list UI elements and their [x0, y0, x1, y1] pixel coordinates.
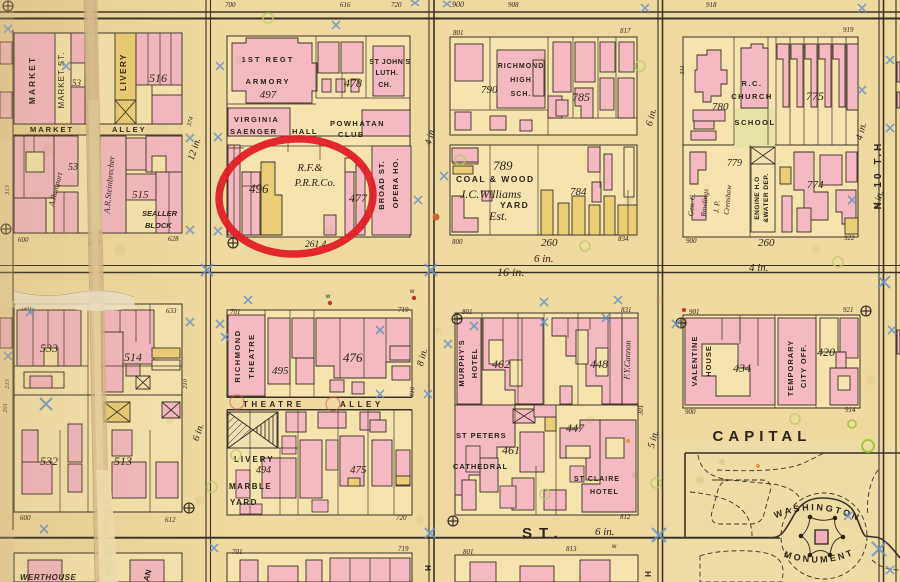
svg-text:J.C.Williams: J.C.Williams: [460, 187, 522, 201]
svg-text:462: 462: [492, 357, 510, 371]
svg-text:785: 785: [572, 90, 590, 104]
svg-text:774: 774: [807, 179, 824, 191]
svg-text:1ST REGT: 1ST REGT: [242, 55, 295, 64]
svg-text:719: 719: [398, 306, 409, 314]
svg-text:THEATRE: THEATRE: [247, 333, 256, 378]
svg-text:R.C.: R.C.: [742, 79, 763, 88]
svg-text:801: 801: [462, 308, 473, 316]
svg-text:F.Y.Cannon: F.Y.Cannon: [621, 340, 632, 381]
svg-text:477: 477: [349, 191, 368, 205]
svg-text:834: 834: [618, 235, 629, 243]
svg-text:476: 476: [343, 350, 363, 365]
svg-text:813: 813: [566, 545, 577, 553]
svg-text:311: 311: [679, 65, 686, 75]
svg-text:POWHATAN: POWHATAN: [330, 119, 385, 128]
svg-text:434: 434: [733, 361, 751, 375]
svg-text:260: 260: [541, 237, 558, 249]
svg-text:CATHEDRAL: CATHEDRAL: [453, 462, 508, 471]
svg-text:RICHMOND: RICHMOND: [233, 329, 242, 382]
svg-text:701: 701: [232, 548, 243, 556]
svg-text:900: 900: [685, 408, 696, 416]
svg-text:817: 817: [620, 27, 631, 35]
svg-text:448: 448: [590, 357, 608, 371]
svg-text:831: 831: [621, 306, 632, 314]
svg-text:ST CLAIRE: ST CLAIRE: [574, 476, 620, 483]
svg-text:SCH.: SCH.: [511, 91, 532, 98]
svg-text:Est.: Est.: [488, 209, 507, 223]
svg-text:801: 801: [453, 29, 464, 37]
svg-text:J. P.: J. P.: [711, 200, 721, 213]
svg-text:496: 496: [249, 181, 269, 196]
svg-text:CHURCH: CHURCH: [731, 92, 773, 101]
svg-text:YARD: YARD: [230, 498, 258, 507]
svg-text:16 in.: 16 in.: [497, 265, 524, 279]
svg-text:CAPITAL: CAPITAL: [713, 428, 812, 445]
svg-text:497: 497: [260, 89, 277, 101]
svg-text:6 in.: 6 in.: [534, 253, 554, 265]
svg-text:HIGH: HIGH: [510, 77, 532, 84]
svg-text:921: 921: [843, 306, 854, 314]
svg-text:HOTEL: HOTEL: [470, 348, 479, 378]
svg-text:775: 775: [806, 89, 824, 103]
svg-text:w: w: [409, 289, 415, 295]
svg-text:P.R.R.Co.: P.R.R.Co.: [294, 178, 336, 189]
svg-text:494: 494: [256, 465, 271, 476]
svg-text:801: 801: [463, 548, 474, 556]
svg-text:THEATRE: THEATRE: [243, 400, 305, 409]
svg-text:478: 478: [344, 76, 362, 90]
svg-text:H: H: [424, 565, 433, 571]
svg-text:700: 700: [225, 1, 236, 9]
svg-text:720: 720: [396, 514, 407, 522]
svg-text:779: 779: [727, 158, 742, 169]
svg-text:919: 919: [843, 26, 854, 34]
svg-text:w: w: [611, 544, 617, 550]
svg-text:VIRGINIA: VIRGINIA: [234, 115, 279, 124]
svg-text:VALENTINE: VALENTINE: [690, 336, 699, 387]
svg-text:SAENGER: SAENGER: [230, 127, 278, 136]
svg-text:CITY OFF.: CITY OFF.: [799, 344, 808, 388]
svg-text:ST JOHN'S: ST JOHN'S: [369, 59, 410, 66]
svg-text:4 in.: 4 in.: [749, 262, 769, 274]
svg-text:922: 922: [844, 234, 855, 242]
svg-text:&WATER DEP.: &WATER DEP.: [763, 173, 770, 222]
svg-text:719: 719: [398, 545, 409, 553]
svg-text:BROAD ST.: BROAD ST.: [377, 160, 386, 209]
svg-text:ST PETERS: ST PETERS: [456, 431, 507, 440]
svg-text:HOUSE: HOUSE: [704, 345, 713, 377]
svg-text:420: 420: [817, 345, 835, 359]
svg-text:812: 812: [620, 513, 631, 521]
svg-text:SCHOOL: SCHOOL: [734, 118, 775, 127]
svg-text:R.F.&: R.F.&: [297, 163, 324, 174]
svg-text:816: 816: [409, 386, 417, 397]
svg-text:447: 447: [566, 421, 585, 435]
svg-text:MURPHY'S: MURPHY'S: [457, 339, 466, 386]
svg-text:w: w: [325, 294, 331, 300]
svg-text:LUTH.: LUTH.: [375, 70, 398, 77]
svg-text:COAL & WOOD: COAL & WOOD: [456, 174, 535, 184]
svg-text:ARMORY: ARMORY: [245, 77, 290, 86]
svg-text:701: 701: [230, 308, 241, 316]
svg-text:789: 789: [493, 158, 513, 173]
svg-text:CH.: CH.: [378, 82, 392, 89]
svg-text:475: 475: [350, 464, 367, 476]
svg-text:ST.: ST.: [522, 525, 565, 542]
svg-text:461: 461: [502, 443, 520, 457]
svg-text:790: 790: [481, 84, 498, 96]
svg-text:301: 301: [637, 405, 645, 417]
svg-text:TEMPORARY: TEMPORARY: [786, 340, 795, 397]
svg-text:HALL: HALL: [292, 127, 318, 136]
svg-text:908: 908: [508, 1, 519, 9]
svg-text:H: H: [644, 571, 653, 577]
svg-text:780: 780: [712, 101, 729, 113]
svg-text:260: 260: [758, 237, 775, 249]
svg-text:6 in.: 6 in.: [595, 526, 615, 538]
svg-text:616: 616: [340, 1, 351, 9]
svg-text:495: 495: [272, 365, 289, 377]
svg-text:784: 784: [570, 186, 587, 198]
svg-text:CLUB: CLUB: [338, 130, 365, 139]
svg-text:800: 800: [452, 238, 463, 246]
svg-text:918: 918: [706, 1, 717, 9]
svg-text:HOTEL: HOTEL: [590, 489, 619, 496]
svg-text:900: 900: [686, 237, 697, 245]
svg-text:901: 901: [689, 308, 700, 316]
svg-text:900: 900: [452, 0, 464, 9]
svg-text:ALLEY: ALLEY: [340, 400, 384, 409]
svg-text:720: 720: [391, 1, 402, 9]
svg-text:OPERA HO.: OPERA HO.: [391, 158, 400, 209]
svg-text:MARBLE: MARBLE: [229, 482, 272, 491]
svg-text:914: 914: [845, 406, 856, 414]
